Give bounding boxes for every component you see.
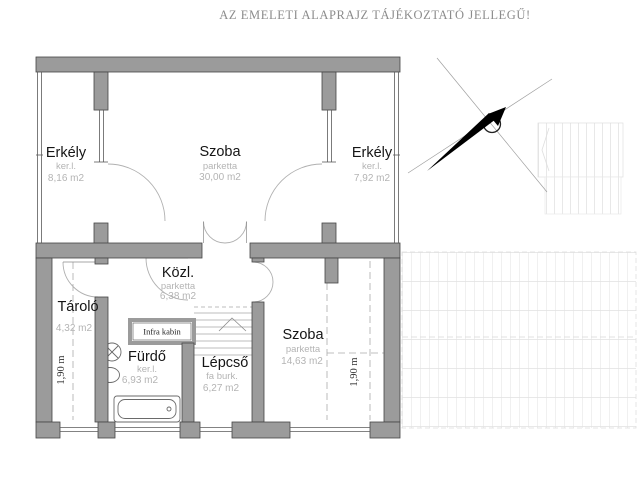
wall-middle-left: [36, 243, 202, 258]
szoba-double-door-arc-right: [225, 222, 247, 244]
room-finish: parketta: [286, 344, 321, 355]
room-label-lepcso: Lépcső fa burk. 6,27 m2: [202, 355, 249, 394]
room-name: Lépcső: [202, 355, 249, 371]
room-label-kozl: Közl. parketta 6,38 m2: [160, 265, 197, 302]
balcony-right-door-arc: [265, 164, 322, 221]
room-label-erkely-left: Erkély ker.l. 8,16 m2: [46, 145, 87, 184]
infra-cabin: Infra kabin: [130, 320, 194, 343]
room-label-szoba-lower: Szoba parketta 14,63 m2: [281, 327, 324, 367]
room-area: 14,63 m2: [281, 356, 323, 367]
room-label-furdo: Fürdő ker.l. 6,93 m2: [122, 349, 166, 386]
szoba-lower-door-arc-bottom: [253, 282, 273, 302]
staircase: [194, 307, 252, 355]
room-name: Tároló: [57, 299, 98, 315]
room-name: Erkély: [352, 145, 393, 161]
compass-north-arrow: [408, 58, 552, 192]
compass-needle: [427, 113, 496, 171]
infra-cabin-label: Infra kabin: [143, 327, 181, 337]
szoba-double-door-arc-left: [204, 222, 226, 244]
wall-right-exterior: [384, 258, 400, 422]
roof-plan-faint-lines: [402, 123, 636, 428]
room-area: 6,38 m2: [160, 291, 197, 302]
tarolo-door-arc: [63, 262, 98, 297]
room-area: 30,00 m2: [199, 172, 241, 183]
room-finish: ker.l.: [56, 161, 76, 172]
roof-grid: [402, 252, 636, 428]
room-name: Fürdő: [128, 349, 166, 365]
wall-left-exterior: [36, 258, 52, 422]
wall-top: [36, 57, 400, 72]
room-area: 6,93 m2: [122, 375, 159, 386]
floor-plan-page: Infra kabin: [0, 0, 640, 480]
room-label-erkely-right: Erkély ker.l. 7,92 m2: [352, 145, 393, 184]
roof-stair-outline: [538, 123, 623, 177]
szoba-lower-door-arc-top: [253, 262, 273, 282]
height-label-right: 1,90 m: [349, 357, 360, 386]
floor-plan-drawing: Infra kabin: [0, 0, 640, 480]
room-name: Erkély: [46, 145, 87, 161]
room-area: 6,27 m2: [203, 383, 240, 394]
room-label-tarolo: Tároló 4,32 m2: [56, 299, 99, 334]
page-title: AZ EMELETI ALAPRAJZ TÁJÉKOZTATÓ JELLEGŰ!: [219, 8, 531, 22]
room-finish: ker.l.: [137, 364, 157, 375]
wall-bottom: [36, 422, 60, 438]
room-area: 8,16 m2: [48, 173, 85, 184]
room-area: 7,92 m2: [354, 173, 391, 184]
room-name: Közl.: [162, 265, 194, 281]
room-name: Szoba: [282, 327, 324, 343]
room-area: 4,32 m2: [56, 323, 93, 334]
room-finish: ker.l.: [362, 161, 382, 172]
wall-middle-right: [250, 243, 400, 258]
room-name: Szoba: [199, 144, 241, 160]
room-finish: fa burk.: [206, 371, 238, 382]
room-finish: parketta: [203, 161, 238, 172]
height-label-left: 1,90 m: [56, 355, 67, 384]
balcony-left-door-arc: [108, 164, 165, 221]
room-label-szoba-top: Szoba parketta 30,00 m2: [199, 144, 241, 183]
